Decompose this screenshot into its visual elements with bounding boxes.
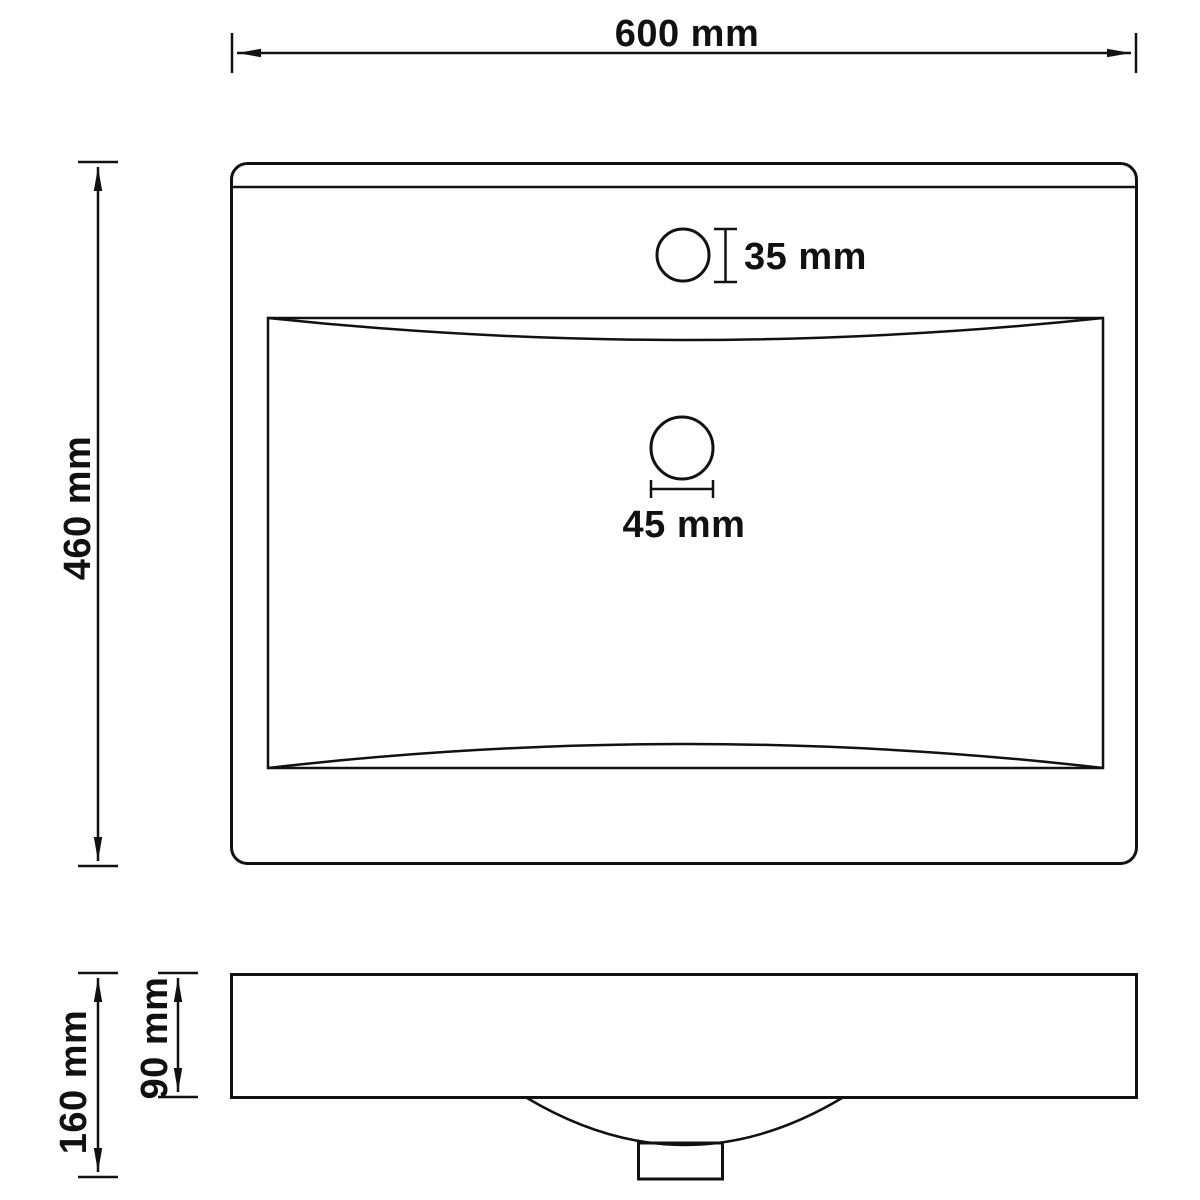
width-dimension: 600 mm [232,13,1136,73]
basin-inner-bottom-curve [268,744,1103,768]
total-height-dimension: 160 mm [53,973,118,1177]
faucet-hole [657,229,709,281]
side-profile-outline [232,975,1137,1098]
bowl-underside-curve [527,1098,842,1145]
faucet-hole-dimension: 35 mm [714,229,867,282]
drain-hole-dimension: 45 mm [623,480,746,546]
drain-hole-label: 45 mm [623,504,746,546]
total-height-label: 160 mm [53,1010,95,1155]
drain-pipe [639,1143,723,1179]
height-dimension-label: 460 mm [57,436,99,581]
basin-top-view: 35 mm 45 mm [232,164,1137,864]
faucet-hole-label: 35 mm [744,236,867,278]
washbasin-dimension-drawing: 600 mm 460 mm 35 mm [0,0,1200,1200]
width-dimension-label: 600 mm [615,13,760,55]
basin-inner-top-curve [268,318,1103,340]
drain-hole [651,417,713,479]
basin-depth-label: 90 mm [134,977,176,1100]
height-dimension: 460 mm [57,162,118,866]
technical-drawing-page: 600 mm 460 mm 35 mm [0,0,1200,1200]
basin-side-view [232,975,1137,1180]
basin-depth-dimension: 90 mm [134,973,198,1099]
